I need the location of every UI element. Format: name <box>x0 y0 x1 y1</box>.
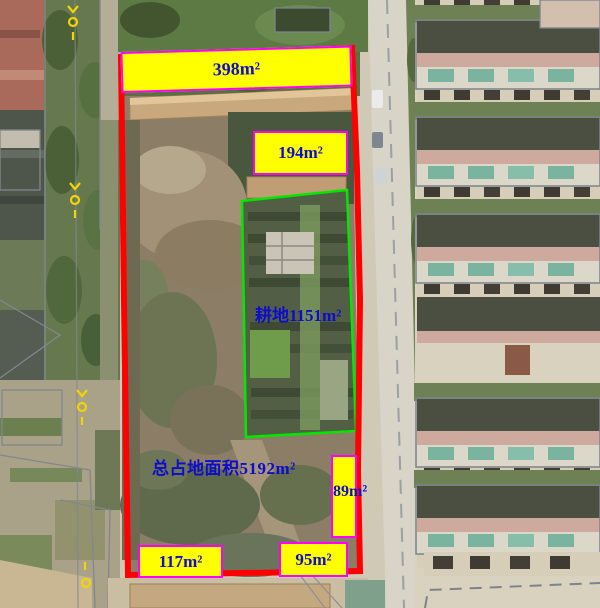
area-label-89: 89m² <box>333 483 367 501</box>
annotated-aerial-map: 398m² 194m² 89m² 117m² 95m² 耕地1151m² 总占地… <box>0 0 600 608</box>
farmland-area-label: 耕地1151m² <box>255 301 341 326</box>
total-area-label: 总占地面积5192m² <box>152 454 296 479</box>
left-garden-plots <box>0 380 120 608</box>
area-label-95: 95m² <box>279 542 348 577</box>
tree-strip <box>42 0 120 385</box>
area-label-194: 194m² <box>253 131 348 175</box>
bottom-strip <box>108 575 385 608</box>
right-buildings <box>414 0 600 608</box>
area-label-117: 117m² <box>138 545 223 578</box>
area-label-398: 398m² <box>120 46 352 93</box>
